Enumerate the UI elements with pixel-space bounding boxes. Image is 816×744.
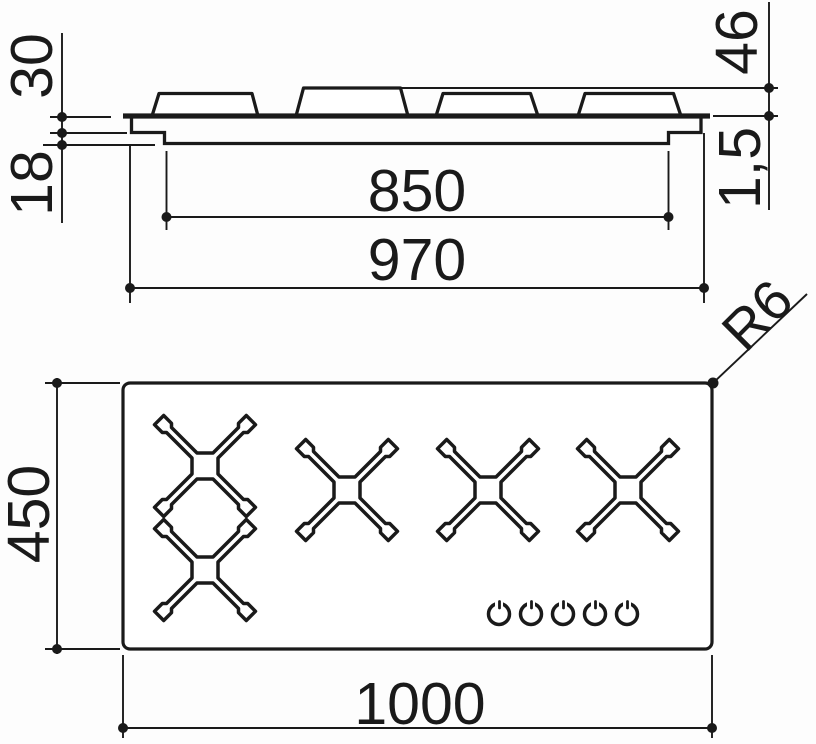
dim-endpoint-dot [764,83,774,93]
dim-endpoint-dot [52,644,62,654]
dim-endpoint-dot [118,723,128,733]
dim-endpoint-dot [764,111,774,121]
dim-endpoint-dot [707,723,717,733]
hob-outline [123,383,712,649]
dim-endpoint-dot [57,112,67,122]
dim-label-1-5: 1,5 [707,127,773,209]
dim-endpoint-dot [57,128,67,138]
dim-label-r6: R6 [709,267,804,362]
dim-endpoint-dot [125,283,135,293]
dim-label-850: 850 [368,158,466,224]
burner-cap-4 [578,94,681,117]
r6-leader-dot [708,378,719,389]
dim-label-46: 46 [704,9,770,75]
dim-endpoint-dot [57,140,67,150]
hob-top-plate [123,113,710,118]
dim-endpoint-dot [52,378,62,388]
dim-label-18: 18 [0,150,65,216]
burner-cap-1 [152,94,258,117]
hob-dimension-drawing: 30 18 46 1,5 850 970 [0,0,816,744]
dim-label-450: 450 [0,465,62,563]
dim-endpoint-dot [664,212,674,222]
dim-endpoint-dot [699,283,709,293]
dim-label-1000: 1000 [354,671,485,737]
profile-dimensions: 30 18 46 1,5 850 970 [0,2,778,303]
burner-cap-2 [296,88,408,116]
technical-drawing-page: 30 18 46 1,5 850 970 [0,0,816,744]
side-profile-view [123,88,710,144]
dim-label-30: 30 [0,33,65,99]
burner-cap-3 [436,94,538,117]
dim-endpoint-dot [162,212,172,222]
hob-body-profile [132,117,702,144]
dim-label-970: 970 [368,227,466,293]
plan-view [123,383,712,649]
